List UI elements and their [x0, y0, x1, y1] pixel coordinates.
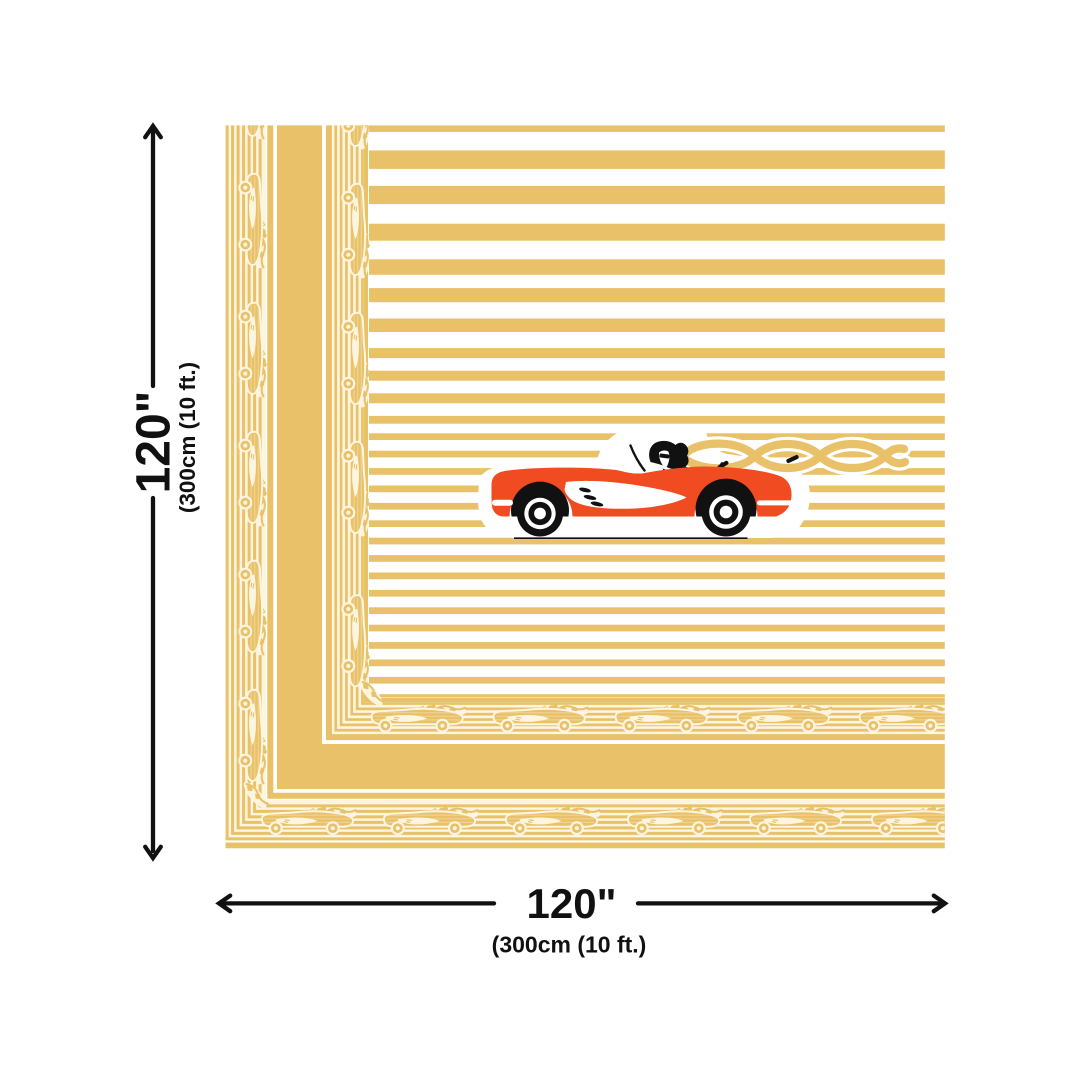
svg-text:(300cm (10 ft.): (300cm (10 ft.) [175, 362, 200, 513]
svg-text:(300cm (10 ft.): (300cm (10 ft.) [492, 932, 647, 958]
svg-text:120": 120" [128, 391, 181, 494]
svg-text:120": 120" [527, 880, 617, 927]
